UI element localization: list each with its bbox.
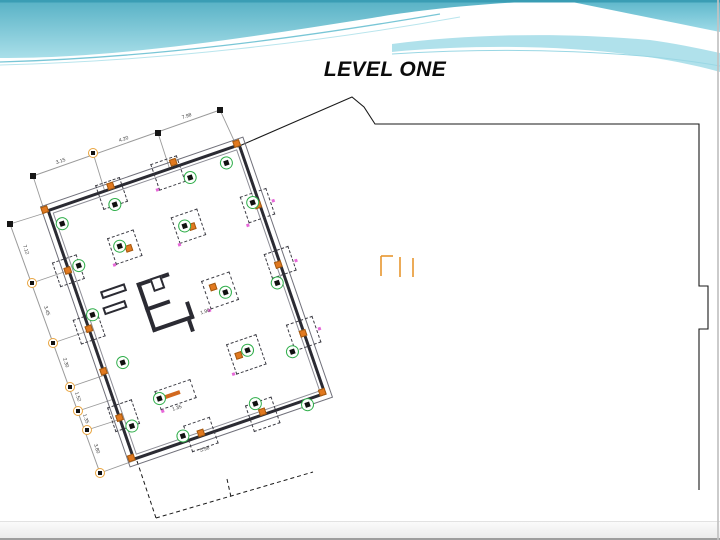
header-top-bar <box>0 0 720 3</box>
grid-end-square <box>85 428 89 432</box>
header-teal-area <box>0 0 562 58</box>
dimension-label: 3.80 <box>92 444 100 455</box>
column-square <box>58 220 64 226</box>
dimension-label: 4.20 <box>119 136 130 144</box>
dimension-label: 3.15 <box>56 158 67 166</box>
dimension-label: 5.98 <box>200 446 211 454</box>
grid-end-marker-ringed <box>65 382 75 392</box>
column-square <box>75 262 81 268</box>
column-square <box>116 243 122 249</box>
dimension-label: 1.35 <box>81 414 89 425</box>
grid-end-marker-ringed <box>88 148 98 158</box>
grid-end-square <box>98 471 102 475</box>
corner-tick-mark <box>293 258 297 262</box>
header-stripe-1 <box>0 14 440 62</box>
grid-end-square <box>30 281 34 285</box>
column-square <box>252 400 258 406</box>
grid-end-marker-ringed <box>27 278 37 288</box>
dimension-extension-line <box>10 213 45 224</box>
column-square <box>244 347 250 353</box>
grid-end-marker <box>155 130 161 136</box>
site-boundary-dashed <box>156 472 313 518</box>
site-boundary-outline <box>237 97 708 490</box>
grid-end-square <box>68 385 72 389</box>
column-square <box>128 423 134 429</box>
grid-end-marker-ringed <box>48 338 58 348</box>
dimension-label: 7.12 <box>21 245 29 256</box>
slide-title: LEVEL ONE <box>324 58 446 82</box>
column-square <box>222 289 228 295</box>
grid-end-marker <box>30 173 36 179</box>
column-square <box>179 432 185 438</box>
column-square <box>89 311 95 317</box>
grid-end-marker-ringed <box>73 406 83 416</box>
column-square <box>273 279 279 285</box>
corner-tick-mark <box>271 199 275 203</box>
column-square <box>156 395 162 401</box>
site-boundary-dashed <box>227 479 231 497</box>
grid-end-square <box>76 409 80 413</box>
column-square <box>119 359 125 365</box>
column-square <box>111 201 117 207</box>
dimension-label: 1.52 <box>73 392 81 403</box>
floor-plan: 1.351.90 <box>48 144 326 460</box>
grid-end-marker <box>217 107 223 113</box>
grid-end-marker-ringed <box>95 468 105 478</box>
column-square <box>181 222 187 228</box>
grid-end-marker-ringed <box>82 425 92 435</box>
grid-end-square <box>91 151 95 155</box>
corner-tick-mark <box>317 326 321 330</box>
header-corner-wedge <box>562 0 720 32</box>
slide-footer-bar <box>0 521 720 540</box>
column-square <box>289 348 295 354</box>
slide-canvas: LEVEL ONE 1.351.90 7.984.203.157.123.452… <box>0 0 720 540</box>
grid-end-marker <box>7 221 13 227</box>
dimension-label: 2.30 <box>61 358 69 369</box>
grid-end-square <box>51 341 55 345</box>
column-square <box>249 199 255 205</box>
site-boundary-dashed <box>137 461 156 518</box>
dimension-label: 3.45 <box>42 306 50 317</box>
column-square <box>186 174 192 180</box>
dimension-label: 7.98 <box>182 113 193 121</box>
column-square <box>304 401 310 407</box>
slide-right-edge <box>717 0 719 540</box>
column-square <box>223 159 229 165</box>
